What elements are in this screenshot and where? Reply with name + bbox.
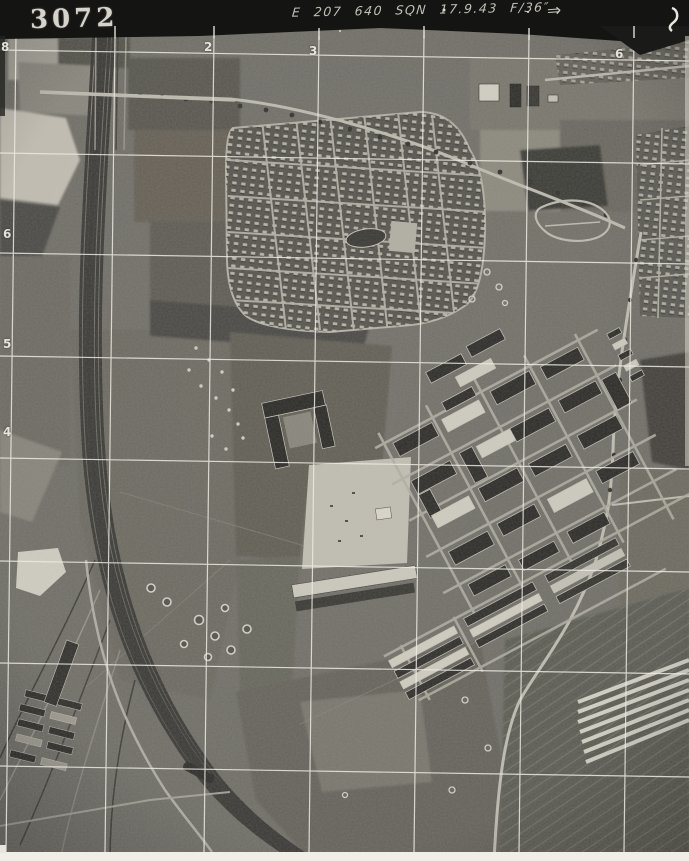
film-grain — [0, 30, 689, 855]
grid-label-left-6: 6 — [3, 227, 11, 241]
aerial-photo-sheet: 3072 E 207 640 SQN 17.9.43 F/36″ ⇒ 8 2 3… — [0, 0, 689, 861]
grid-label-left-4: 4 — [3, 425, 11, 439]
grid-label-top-2: 2 — [204, 40, 212, 54]
grid-label-top-3: 3 — [309, 44, 317, 58]
paper-border-bottom — [0, 852, 689, 861]
grid-label-left-5: 5 — [3, 337, 11, 351]
paper-border-right — [685, 36, 689, 466]
grid-label-top-8: 8 — [1, 40, 9, 54]
aerial-photograph — [0, 0, 689, 861]
grid-label-top-6: 6 — [615, 47, 623, 61]
paper-nick — [0, 845, 6, 853]
annotation-arrow-icon: ⇒ — [546, 1, 562, 22]
photo-id-stamp: 3072 — [30, 3, 119, 35]
